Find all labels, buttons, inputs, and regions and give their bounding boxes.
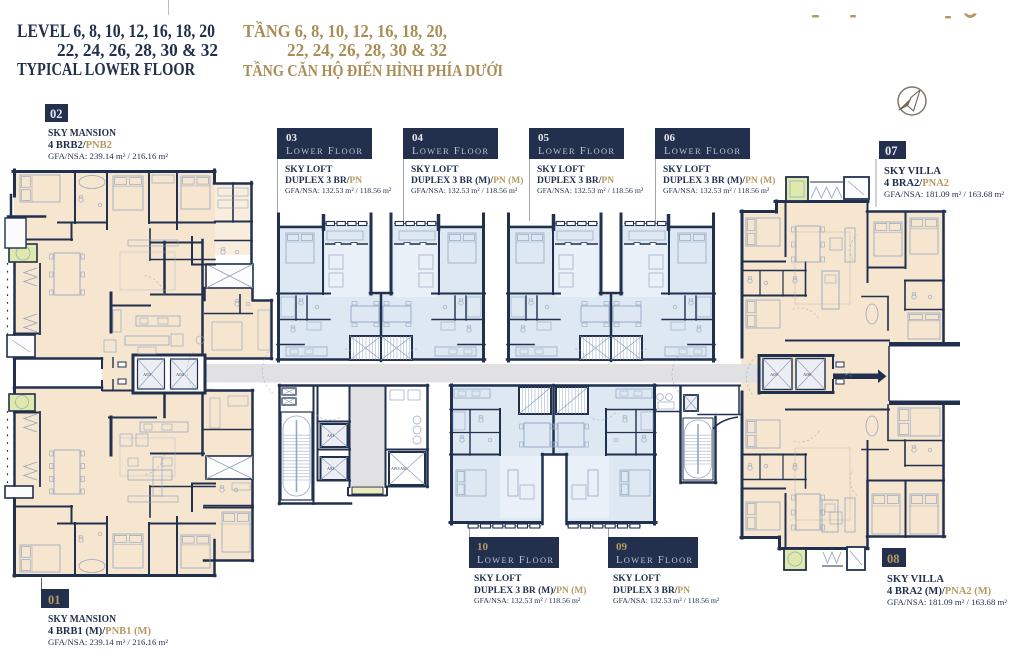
svg-text:08: 08 (887, 552, 900, 566)
svg-text:A04: A04 (176, 372, 184, 377)
svg-text:LOWER FLOOR: LOWER FLOOR (538, 146, 615, 157)
svg-text:LOWER FLOOR: LOWER FLOOR (412, 146, 489, 157)
svg-text:01: 01 (48, 593, 61, 607)
svg-text:GFA/NSA: 132.53 m² / 118.56 m²: GFA/NSA: 132.53 m² / 118.56 m² (537, 186, 644, 195)
svg-text:10: 10 (477, 541, 489, 553)
svg-text:LOWER FLOOR: LOWER FLOOR (286, 146, 363, 157)
svg-text:SKY LOFT: SKY LOFT (613, 574, 661, 584)
svg-text:AFD/ASL: AFD/ASL (391, 466, 408, 471)
svg-text:DUPLEX 3 BR (M)/PN (M): DUPLEX 3 BR (M)/PN (M) (411, 175, 523, 186)
svg-text:A03: A03 (143, 372, 151, 377)
svg-text:SKY LOFT: SKY LOFT (537, 165, 585, 175)
svg-text:LEVEL 6, 8, 10, 12, 16, 18, 20: LEVEL 6, 8, 10, 12, 16, 18, 20 (17, 21, 215, 42)
svg-text:SKY MANSION: SKY MANSION (48, 614, 116, 625)
svg-text:GFA/NSA: 132.53 m² / 118.56 m²: GFA/NSA: 132.53 m² / 118.56 m² (613, 596, 720, 605)
svg-text:SKY LOFT: SKY LOFT (474, 574, 522, 584)
svg-text:05: 05 (538, 132, 550, 144)
svg-text:4 BRB2/PNB2: 4 BRB2/PNB2 (48, 140, 112, 151)
svg-text:GFA/NSA: 239.14 m² / 216.16 m²: GFA/NSA: 239.14 m² / 216.16 m² (48, 638, 169, 647)
svg-text:04: 04 (412, 132, 424, 144)
svg-text:LOWER FLOOR: LOWER FLOOR (664, 146, 741, 157)
svg-text:06: 06 (664, 132, 676, 144)
svg-text:DUPLEX 3 BR/PN: DUPLEX 3 BR/PN (285, 176, 362, 186)
svg-text:SKY LOFT: SKY LOFT (411, 165, 459, 175)
svg-text:09: 09 (616, 541, 628, 553)
svg-text:4 BRA2 (M)/PNA2 (M): 4 BRA2 (M)/PNA2 (M) (887, 586, 992, 597)
svg-text:22, 24, 26, 28, 30 & 32: 22, 24, 26, 28, 30 & 32 (287, 40, 447, 60)
svg-text:22, 24, 26, 28, 30 & 32: 22, 24, 26, 28, 30 & 32 (57, 40, 218, 60)
svg-text:A02: A02 (327, 466, 334, 471)
svg-text:DUPLEX 3 BR (M)/PN (M): DUPLEX 3 BR (M)/PN (M) (663, 175, 775, 186)
svg-text:A05: A05 (770, 372, 778, 377)
svg-text:LOWER FLOOR: LOWER FLOOR (477, 555, 554, 566)
svg-text:TẦNG CĂN HỘ ĐIỂN HÌNH PHÍA DƯỚ: TẦNG CĂN HỘ ĐIỂN HÌNH PHÍA DƯỚI (243, 61, 503, 80)
svg-text:TẦNG 6, 8, 10, 12, 16, 18, 20,: TẦNG 6, 8, 10, 12, 16, 18, 20, (243, 20, 447, 41)
svg-text:LOWER FLOOR: LOWER FLOOR (616, 555, 693, 566)
svg-text:GFA/NSA: 132.53 m² / 118.56 m²: GFA/NSA: 132.53 m² / 118.56 m² (411, 186, 518, 195)
svg-text:GFA/NSA: 181.09 m² / 163.68 m²: GFA/NSA: 181.09 m² / 163.68 m² (884, 190, 1005, 199)
svg-text:A06: A06 (803, 372, 811, 377)
svg-text:TYPICAL LOWER FLOOR: TYPICAL LOWER FLOOR (17, 59, 196, 79)
svg-text:SKY VILLA: SKY VILLA (887, 574, 944, 585)
svg-text:GFA/NSA: 132.53 m² / 118.56 m²: GFA/NSA: 132.53 m² / 118.56 m² (285, 186, 392, 195)
svg-text:07: 07 (885, 144, 898, 158)
svg-text:A01: A01 (327, 433, 334, 438)
svg-text:SKY LOFT: SKY LOFT (663, 165, 711, 175)
svg-text:DUPLEX 3 BR/PN: DUPLEX 3 BR/PN (613, 586, 690, 596)
svg-text:GFA/NSA: 239.14 m² / 216.16 m²: GFA/NSA: 239.14 m² / 216.16 m² (48, 152, 169, 161)
svg-text:02: 02 (50, 107, 63, 121)
svg-text:GFA/NSA: 132.53 m² / 118.56 m²: GFA/NSA: 132.53 m² / 118.56 m² (663, 186, 770, 195)
svg-text:SKY VILLA: SKY VILLA (884, 166, 941, 177)
svg-text:GFA/NSA: 181.09 m² / 163.68 m²: GFA/NSA: 181.09 m² / 163.68 m² (887, 598, 1008, 607)
svg-text:03: 03 (286, 132, 298, 144)
svg-text:4 BRA2/PNA2: 4 BRA2/PNA2 (884, 178, 949, 189)
svg-text:DUPLEX 3 BR/PN: DUPLEX 3 BR/PN (537, 176, 614, 186)
svg-text:DUPLEX 3 BR (M)/PN (M): DUPLEX 3 BR (M)/PN (M) (474, 585, 586, 596)
svg-text:4 BRB1 (M)/PNB1 (M): 4 BRB1 (M)/PNB1 (M) (48, 626, 151, 637)
svg-text:GFA/NSA: 132.53 m² / 118.56 m²: GFA/NSA: 132.53 m² / 118.56 m² (474, 596, 581, 605)
svg-text:SKY MANSION: SKY MANSION (48, 128, 116, 139)
svg-text:SKY LOFT: SKY LOFT (285, 165, 333, 175)
